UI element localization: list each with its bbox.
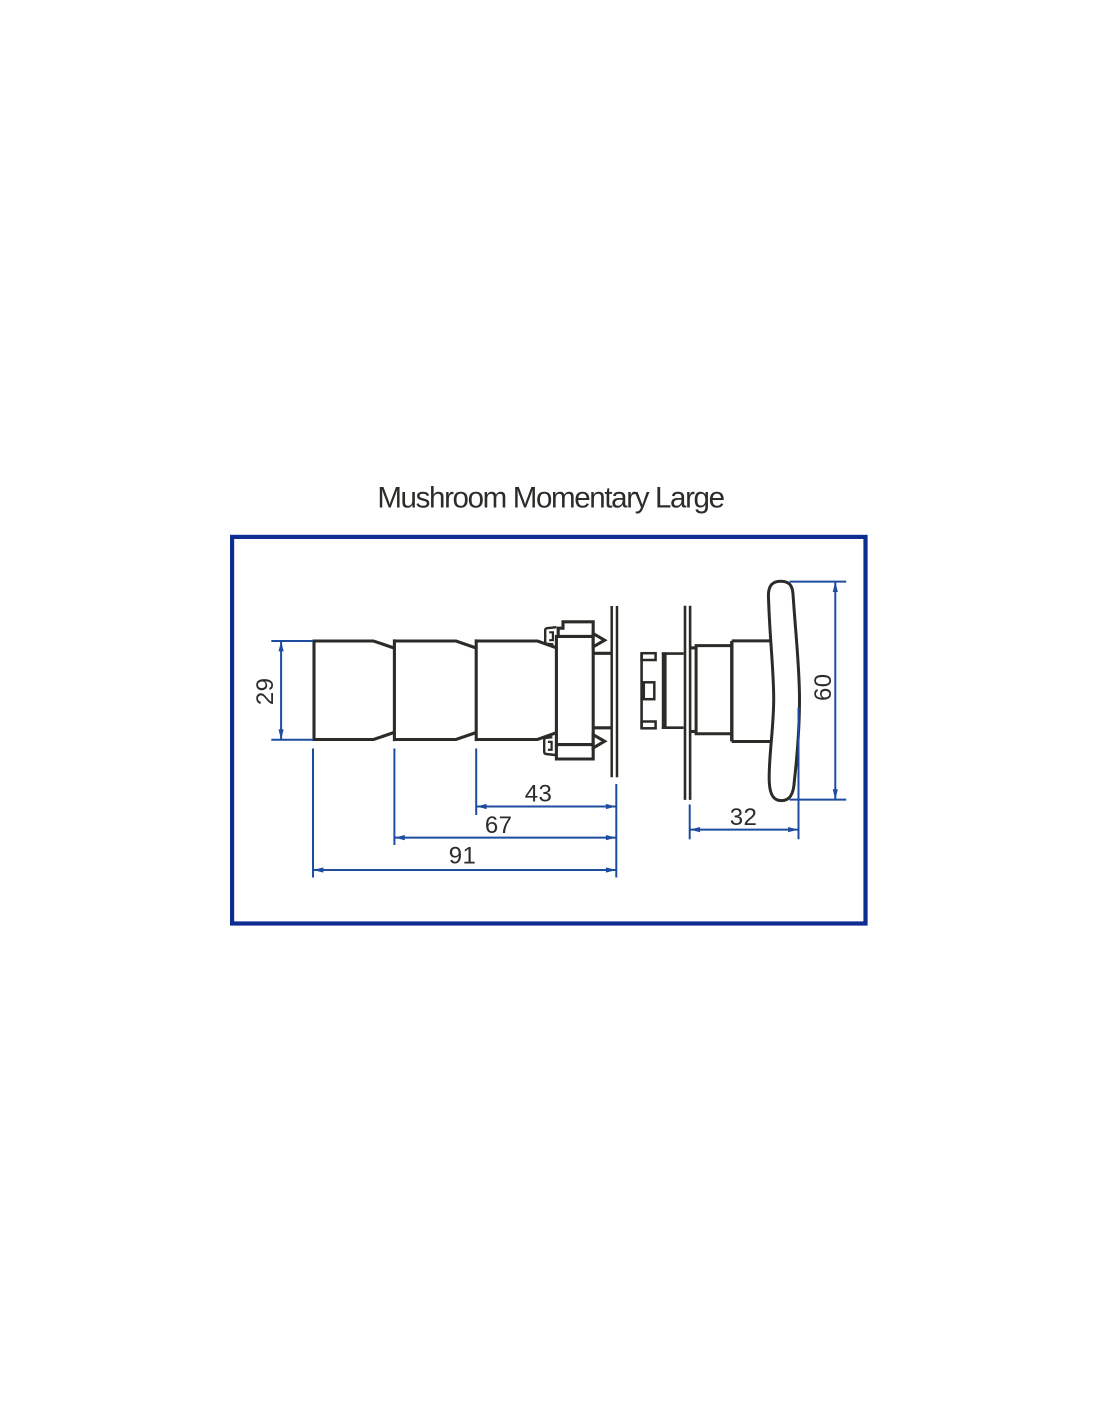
- svg-text:32: 32: [730, 804, 758, 831]
- svg-text:91: 91: [449, 843, 477, 870]
- svg-text:60: 60: [810, 674, 837, 702]
- svg-text:67: 67: [485, 812, 513, 839]
- svg-text:29: 29: [252, 678, 279, 706]
- svg-text:43: 43: [525, 780, 553, 807]
- svg-text:Mushroom Momentary Large: Mushroom Momentary Large: [377, 481, 724, 514]
